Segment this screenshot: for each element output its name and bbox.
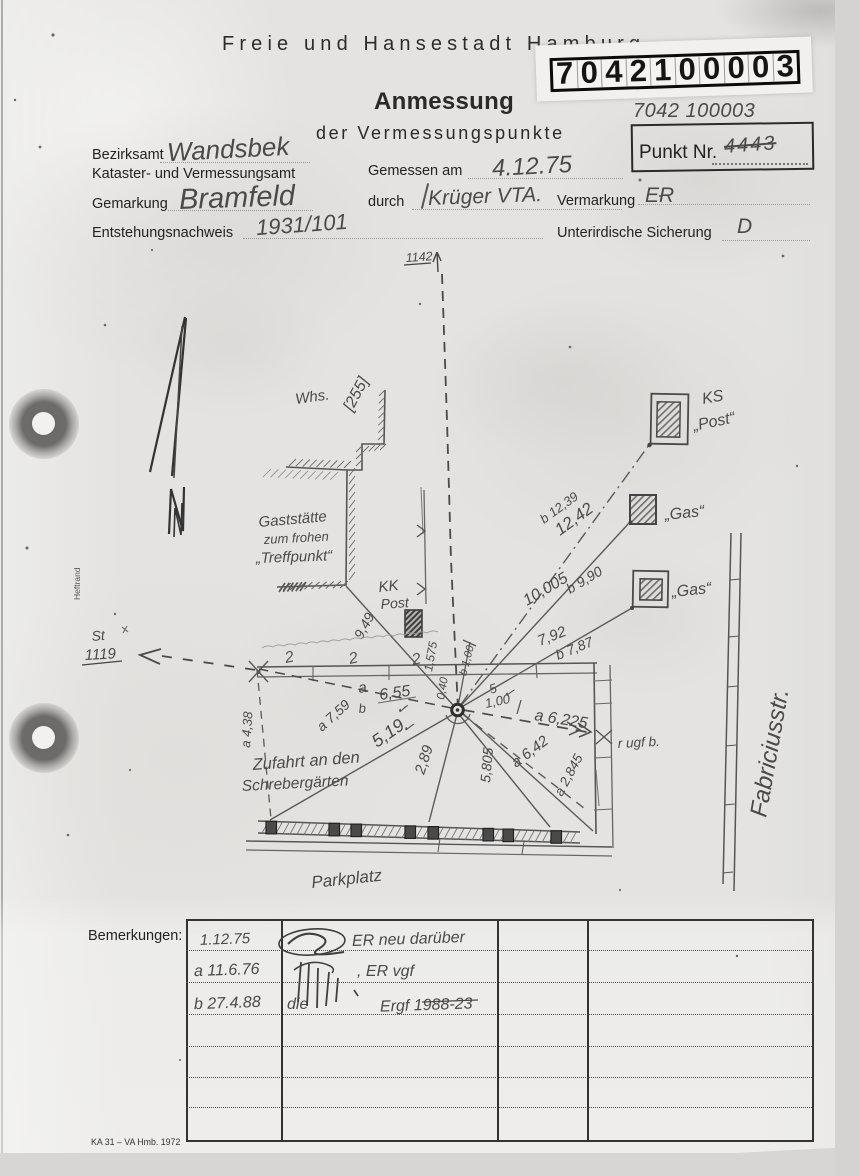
svg-text:[255]: [255] [340,374,372,415]
svg-text:Schrebergärten: Schrebergärten [241,772,349,795]
svg-text:Fabriciusstr.: Fabriciusstr. [745,687,794,820]
svg-text:0,40: 0,40 [435,676,451,701]
svg-text:✓: ✓ [396,700,409,717]
svg-text:5,805: 5,805 [477,747,496,784]
svg-text:1119: 1119 [84,645,117,664]
svg-text:1,00: 1,00 [484,691,513,711]
svg-text:2: 2 [282,648,295,667]
svg-text:a 6,225: a 6,225 [533,707,588,732]
svg-text:KK: KK [378,577,401,596]
svg-text:St: St [91,627,107,644]
svg-text:Whs.: Whs. [294,386,330,408]
svg-text:5,19: 5,19 [368,715,408,751]
svg-text:a 4,38: a 4,38 [238,710,256,748]
svg-text:Zufahrt an den: Zufahrt an den [251,749,360,775]
svg-text:Gaststätte: Gaststätte [258,508,328,531]
svg-text:„Post“: „Post“ [690,409,738,435]
svg-text:r ugf b.: r ugf b. [617,734,660,751]
svg-text:2: 2 [409,650,422,669]
svg-text:1,575: 1,575 [421,640,440,672]
svg-text:a 7,59: a 7,59 [313,696,353,734]
svg-text:a: a [357,679,368,697]
svg-text:KS: KS [701,387,725,408]
svg-text:„Treffpunkt“: „Treffpunkt“ [255,547,334,567]
svg-text:2,89: 2,89 [411,743,437,778]
svg-text:b: b [358,700,367,716]
svg-text:Parkplatz: Parkplatz [310,866,383,892]
svg-text:„Gas“: „Gas“ [663,503,707,524]
svg-text:b 9,90: b 9,90 [563,563,605,597]
svg-text:10,005: 10,005 [520,570,571,610]
svg-text:„Gas“: „Gas“ [670,580,714,601]
svg-text:b 1,00: b 1,00 [457,643,477,676]
svg-text:zum frohen: zum frohen [262,529,329,547]
svg-text:a 6,42: a 6,42 [508,732,552,771]
svg-text:a 2,845: a 2,845 [551,751,586,798]
